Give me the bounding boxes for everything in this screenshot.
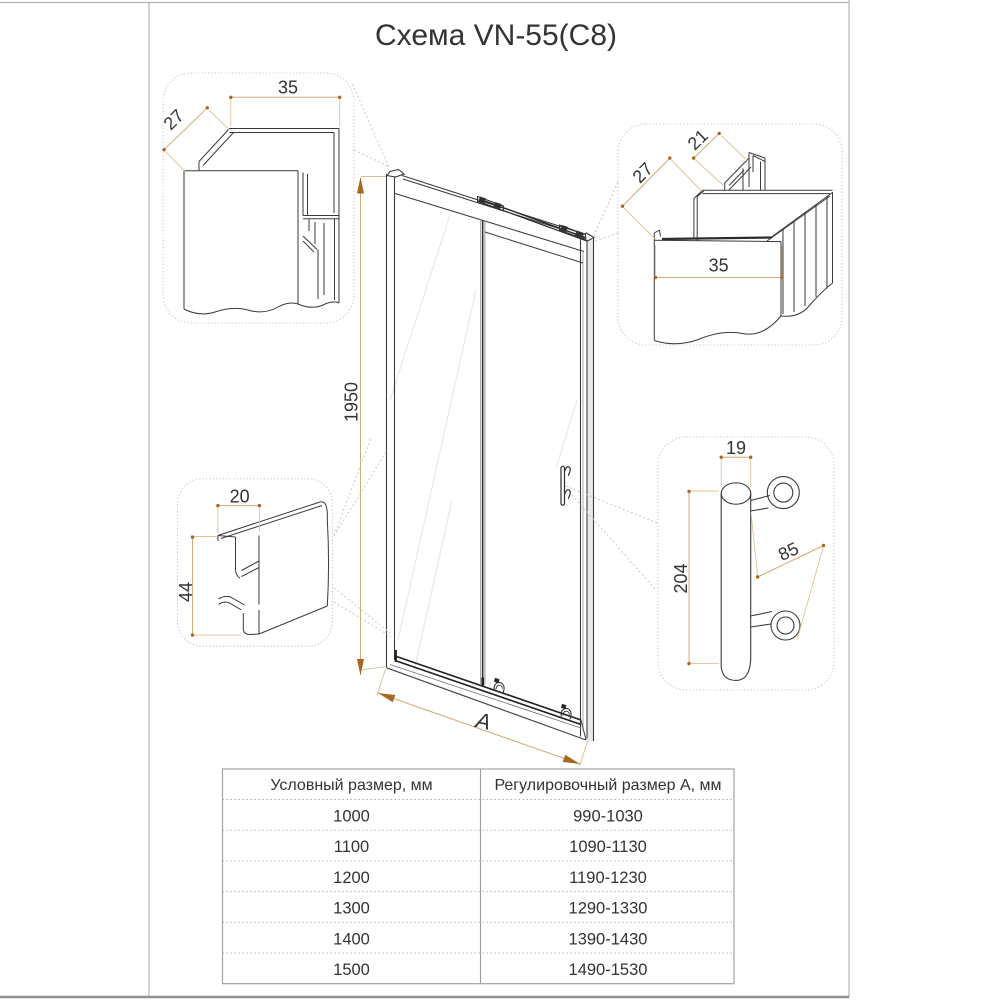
svg-text:1490-1530: 1490-1530 — [569, 961, 648, 979]
svg-text:1950: 1950 — [342, 382, 362, 422]
svg-text:204: 204 — [671, 563, 691, 593]
svg-text:1500: 1500 — [333, 961, 370, 979]
svg-text:Регулировочный размер А, мм: Регулировочный размер А, мм — [494, 777, 721, 794]
svg-text:1200: 1200 — [333, 869, 370, 887]
svg-text:19: 19 — [726, 438, 746, 458]
svg-text:Схема VN-55(C8): Схема VN-55(C8) — [375, 19, 617, 52]
svg-text:44: 44 — [176, 582, 196, 602]
svg-text:1390-1430: 1390-1430 — [569, 930, 648, 948]
svg-text:1400: 1400 — [333, 930, 370, 948]
svg-text:1090-1130: 1090-1130 — [569, 838, 647, 856]
svg-text:35: 35 — [278, 78, 298, 98]
svg-text:35: 35 — [709, 256, 729, 276]
svg-text:1100: 1100 — [334, 838, 369, 856]
svg-text:1000: 1000 — [333, 808, 370, 826]
svg-text:1190-1230: 1190-1230 — [569, 869, 647, 887]
svg-text:1300: 1300 — [333, 900, 370, 918]
svg-text:1290-1330: 1290-1330 — [569, 900, 648, 918]
svg-text:20: 20 — [230, 487, 250, 507]
svg-text:990-1030: 990-1030 — [573, 808, 643, 826]
svg-text:Условный размер, мм: Условный размер, мм — [270, 777, 432, 794]
